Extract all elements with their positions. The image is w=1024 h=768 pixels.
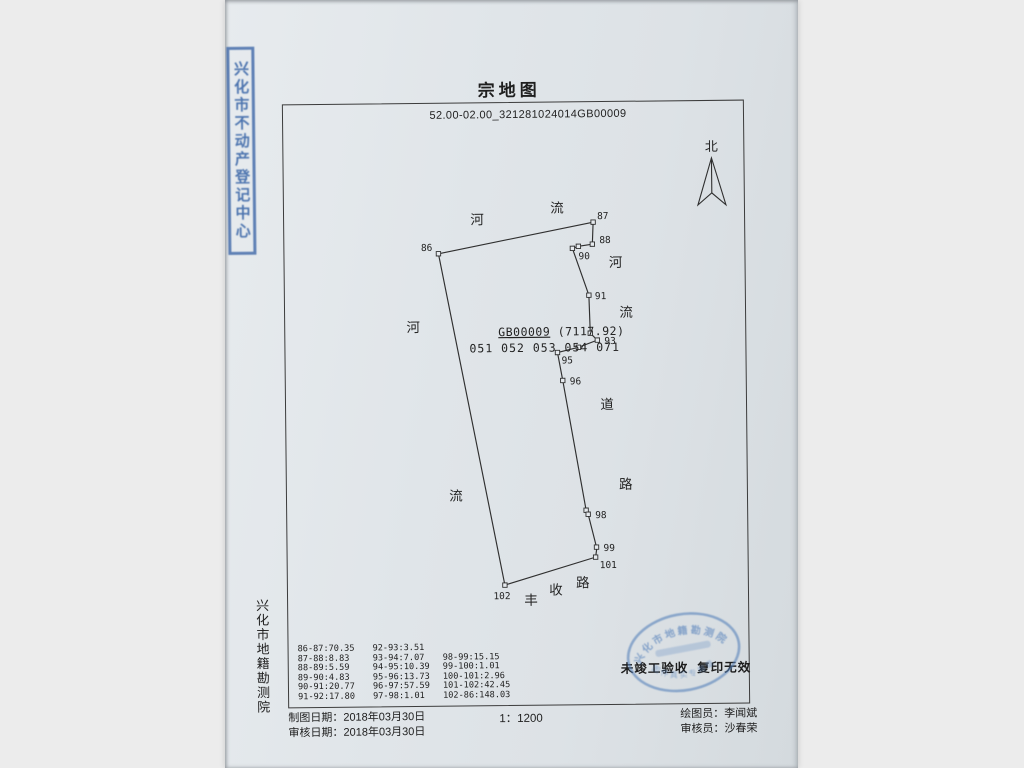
point-label-101: 101 [600, 560, 618, 571]
boundary-point-99 [594, 545, 598, 549]
boundary-point-90 [570, 246, 574, 250]
area-label-0: 河 [470, 212, 484, 227]
oval-stamp-graphic: 兴化市地籍勘测院 图件真实专用章 [622, 607, 745, 698]
drafter-label: 绘图员： [680, 708, 724, 720]
point-label-95: 95 [562, 355, 574, 366]
point-label-88: 88 [599, 235, 611, 246]
point-label-87: 87 [597, 211, 609, 222]
oval-institute-stamp: 兴化市地籍勘测院 图件真实专用章 [622, 607, 745, 698]
checker-name: 沙春荣 [724, 722, 757, 734]
boundary-point-88 [590, 242, 594, 246]
parcel-boundary [438, 222, 600, 586]
boundary-point-89 [576, 244, 580, 248]
point-label-86: 86 [421, 243, 433, 254]
area-label-8: 丰 [524, 593, 538, 608]
drafter-name: 李闻斌 [724, 707, 757, 719]
svg-text:兴化市地籍勘测院: 兴化市地籍勘测院 [626, 615, 733, 668]
point-label-90: 90 [578, 251, 590, 262]
area-label-5: 道 [600, 397, 614, 412]
point-label-99: 99 [603, 543, 615, 554]
area-label-1: 流 [550, 200, 564, 215]
made-date-value: 2018年03月30日 [343, 711, 425, 724]
boundary-point-98 [586, 512, 590, 516]
boundary-point-102 [503, 583, 507, 587]
boundary-point-96 [561, 378, 565, 382]
oval-stamp-bottom-arc-text: 图件真实专用章 [649, 652, 719, 685]
area-label-6: 路 [619, 477, 633, 492]
distance-table-col2: 92-93:3.51 93-94:7.07 94-95:10.39 95-96:… [373, 644, 431, 702]
area-label-9: 收 [549, 582, 563, 597]
boundary-point-87 [591, 220, 595, 224]
distance-table-col3: 98-99:15.15 99-100:1.01 100-101:2.96 101… [443, 653, 511, 702]
footer-dates: 制图日期：2018年03月30日审核日期：2018年03月30日 [288, 710, 425, 741]
point-label-96: 96 [570, 376, 582, 387]
area-label-4: 河 [406, 320, 420, 335]
svg-text:图件真实专用章: 图件真实专用章 [649, 652, 719, 685]
area-label-3: 流 [619, 305, 633, 320]
boundary-point-86 [436, 252, 440, 256]
area-label-10: 路 [576, 575, 590, 590]
page-tilt-wrapper: 兴化市不动产登记中心 宗地图 52.00-02.00_321281024014G… [225, 0, 798, 768]
north-label: 北 [705, 139, 718, 154]
scanned-parcel-map-page: 兴化市不动产登记中心 宗地图 52.00-02.00_321281024014G… [225, 0, 798, 768]
point-label-102: 102 [493, 591, 510, 602]
parcel-code-label: GB00009 (7117.92) [498, 324, 624, 339]
survey-institute-vertical-name: 兴化市地籍勘测院 [252, 599, 272, 715]
review-date-label: 审核日期： [288, 727, 343, 740]
distance-table-col1: 86-87:70.35 87-88:8.83 88-89:5.59 89-90:… [298, 645, 356, 703]
footer-staff: 绘图员：李闻斌审核员：沙春荣 [680, 706, 757, 737]
map-scale: 1：1200 [499, 712, 543, 727]
review-date-value: 2018年03月30日 [343, 726, 425, 739]
area-label-2: 河 [609, 255, 623, 270]
boundary-point-101 [593, 555, 597, 559]
point-label-98: 98 [595, 510, 607, 521]
boundary-point-91 [587, 293, 591, 297]
screenshot-stage: 兴化市不动产登记中心 宗地图 52.00-02.00_321281024014G… [0, 0, 1024, 768]
made-date-label: 制图日期： [288, 712, 343, 725]
parcel-subcodes-label: 051 052 053 054 071 [469, 340, 620, 356]
oval-stamp-top-arc-text: 兴化市地籍勘测院 [626, 615, 733, 668]
point-label-91: 91 [595, 291, 607, 302]
map-frame: 52.00-02.00_321281024014GB00009 86878890… [282, 100, 750, 709]
checker-label: 审核员： [680, 723, 724, 735]
area-label-7: 流 [449, 489, 463, 504]
